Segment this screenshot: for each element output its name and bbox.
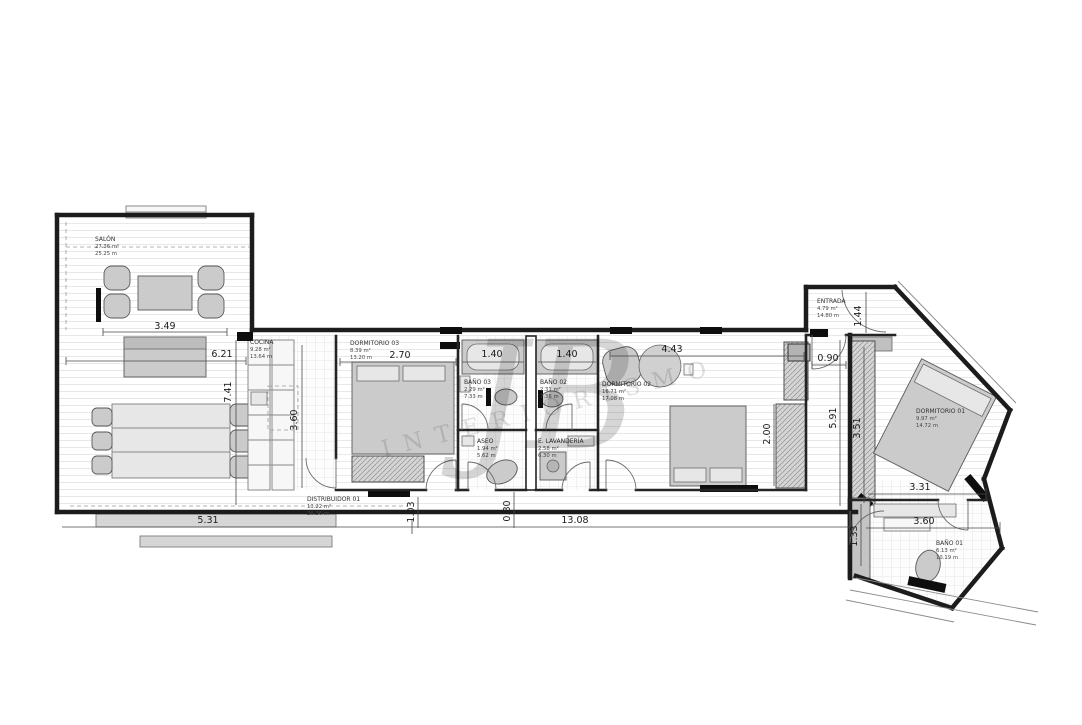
- room-label-distribuidor: DISTRIBUIDOR 01: [307, 496, 360, 503]
- window-bar: [810, 329, 828, 337]
- room-area-bano01: 6.13 m²: [936, 547, 957, 554]
- dim-label: 5.91: [828, 407, 839, 428]
- dim-label: 13.08: [561, 515, 588, 526]
- room-perimeter-salon: 25.25 m: [95, 251, 117, 257]
- dim-label: 1.03: [406, 501, 417, 522]
- armchair: [104, 266, 130, 290]
- dim-label: 3.31: [909, 482, 930, 493]
- room-label-bano01: BAÑO 01: [936, 540, 963, 547]
- floor-plan-svg: 3.49 6.21 7.41 3.60 2.70 1.40 1.40 4.43 …: [0, 0, 1082, 725]
- room-perimeter-cocina: 13.64 m: [250, 354, 272, 360]
- room-label-dormitorio01: DORMITORIO 01: [916, 408, 965, 415]
- dim-label: 4.43: [661, 344, 682, 355]
- wardrobe: [776, 404, 806, 488]
- window-bar: [700, 327, 722, 334]
- armchair: [104, 294, 130, 318]
- room-label-dormitorio03: DORMITORIO 03: [350, 340, 399, 347]
- room-perimeter-dormitorio01: 14.72 m: [916, 423, 938, 429]
- dim-label: 3.60: [913, 516, 934, 527]
- dim-label: 0.90: [817, 353, 838, 364]
- room-perimeter-bano01: 10.19 m: [936, 555, 958, 561]
- dim-label: 2.00: [762, 423, 773, 444]
- sofa-back: [124, 337, 206, 349]
- room-area-salon: 27.36 m²: [95, 243, 119, 250]
- dim-label: 3.60: [289, 409, 300, 430]
- dim-label: 7.41: [223, 381, 234, 402]
- room-area-entrada: 4.79 m²: [817, 305, 838, 312]
- coffee-table: [138, 276, 192, 310]
- dim-label: 6.21: [211, 349, 232, 360]
- room-area-dormitorio03: 8.39 m²: [350, 347, 371, 354]
- room-area-cocina: 9.28 m²: [250, 346, 271, 353]
- dining-chair: [92, 408, 112, 426]
- room-label-salon: SALÓN: [95, 236, 115, 243]
- dim-label: 1.44: [853, 305, 864, 326]
- armchair: [198, 266, 224, 290]
- dim-label: 5.31: [197, 515, 218, 526]
- room-perimeter-entrada: 14.80 m: [817, 313, 839, 319]
- pillow: [674, 468, 706, 482]
- dim-label: 2.70: [389, 350, 410, 361]
- room-label-entrada: ENTRADA: [817, 298, 846, 305]
- room-area-dormitorio01: 9.97 m²: [916, 415, 937, 422]
- room-area-distribuidor: 13.22 m²: [307, 503, 331, 510]
- tv-unit: [96, 288, 101, 322]
- room-label-cocina: COCINA: [250, 339, 274, 346]
- window-sill: [140, 536, 332, 547]
- armchair: [198, 294, 224, 318]
- radiator: [368, 491, 410, 497]
- dining-table: [112, 404, 230, 478]
- window-bar: [440, 327, 462, 334]
- dim-label: 1.33: [849, 525, 860, 546]
- pillow: [710, 468, 742, 482]
- pillow: [403, 366, 445, 381]
- dining-chair: [92, 432, 112, 450]
- dim-label: 3.49: [154, 321, 175, 332]
- dim-label: 3.51: [852, 417, 863, 438]
- dim-label: 0.80: [502, 500, 513, 521]
- kitchen-sink: [251, 392, 267, 405]
- pillow: [357, 366, 399, 381]
- room-perimeter-distribuidor: 26.36 m: [307, 511, 329, 517]
- dining-chair: [92, 456, 112, 474]
- room-perimeter-dormitorio03: 13.20 m: [350, 355, 372, 361]
- floor-plan-page: 3.49 6.21 7.41 3.60 2.70 1.40 1.40 4.43 …: [0, 0, 1082, 725]
